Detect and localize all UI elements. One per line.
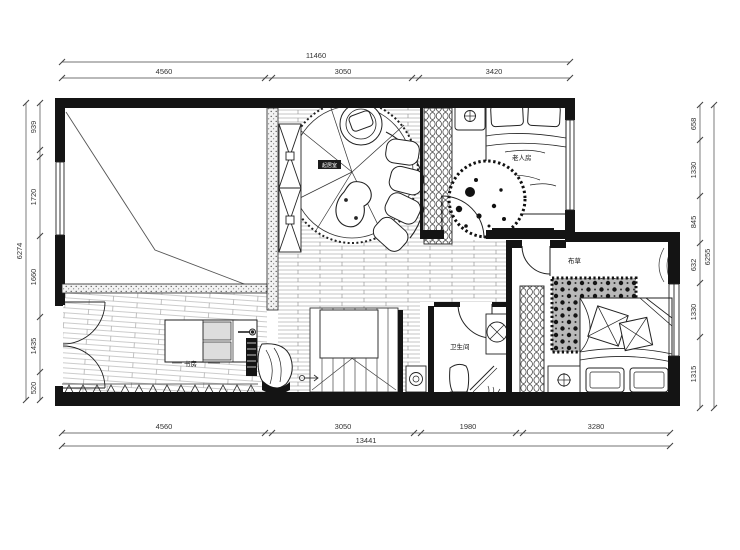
partition-walls-hatched [62, 108, 278, 310]
dim-right-total: 6255 [703, 249, 712, 266]
guest-room-label: 布草 [568, 256, 582, 265]
x-shelf-cabinet [279, 124, 301, 252]
dim-bottom-seg1: 4560 [156, 422, 173, 431]
washbasin [486, 314, 508, 354]
corridor-floor [420, 240, 506, 302]
left-window [56, 162, 64, 235]
dim-right-seg3: 845 [689, 216, 698, 229]
dim-right-seg5: 1330 [689, 304, 698, 321]
dim-left-total: 6274 [15, 243, 24, 260]
floor-plan-page: 起居室 老人房 [0, 0, 740, 550]
draped-chair [258, 344, 292, 394]
sloped-ceiling-line [66, 112, 252, 287]
elder-room-label: 老人房 [512, 153, 532, 162]
elder-room-window [566, 120, 574, 210]
dim-left-seg4: 1435 [29, 338, 38, 355]
dim-left-seg2: 1720 [29, 189, 38, 206]
dim-bottom-seg3: 1980 [460, 422, 477, 431]
dim-left-seg1: 939 [29, 121, 38, 134]
dim-top-seg3: 3420 [486, 67, 503, 76]
left-void-room [66, 112, 252, 287]
desk [165, 320, 257, 362]
shower-door [470, 366, 497, 392]
study-label: 书房 [184, 359, 197, 368]
dim-bottom-seg4: 3280 [588, 422, 605, 431]
dotted-round-rug [449, 161, 525, 237]
dim-left-seg5: 520 [29, 382, 38, 395]
living-room-label: 起居室 [322, 162, 337, 169]
dim-left-seg3: 1660 [29, 269, 38, 286]
washer-column [406, 366, 426, 392]
bathroom-label: 卫生间 [450, 342, 470, 351]
dim-top-seg1: 4560 [156, 67, 173, 76]
dim-top-total: 11460 [306, 51, 326, 60]
dim-right-seg2: 1330 [689, 162, 698, 179]
radiator [246, 338, 257, 376]
staircase [299, 308, 398, 392]
round-chair [340, 103, 382, 145]
dim-bottom-seg2: 3050 [335, 422, 352, 431]
guest-room-door [522, 246, 550, 276]
dim-top-seg2: 3050 [335, 67, 352, 76]
guest-room: 布草 [520, 246, 672, 396]
floor-plan-drawing: 起居室 老人房 [0, 0, 740, 550]
dim-right-seg6: 1315 [689, 366, 698, 383]
dim-right-seg4: 632 [689, 259, 698, 272]
dim-right-seg1: 658 [689, 118, 698, 131]
wardrobe [424, 108, 452, 244]
guest-bed [580, 298, 672, 396]
bathroom: 卫生间 [406, 304, 508, 398]
guest-nightstand [548, 366, 580, 394]
elder-room: 老人房 [424, 100, 566, 244]
stair-landing [320, 310, 378, 358]
dim-bottom-total: 13441 [356, 436, 377, 445]
guest-wardrobe [520, 286, 544, 394]
